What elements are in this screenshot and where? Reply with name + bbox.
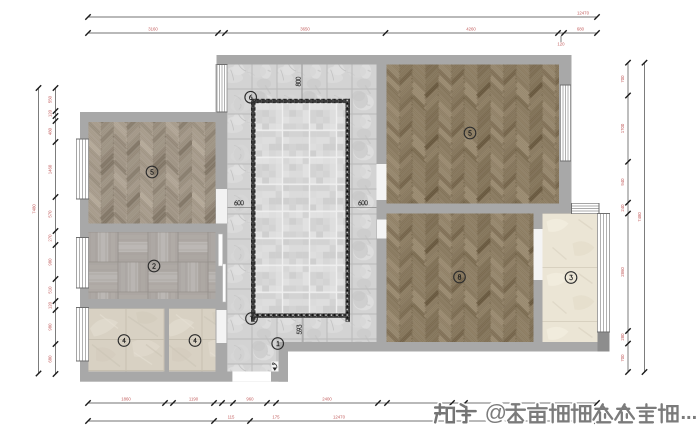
svg-text:570: 570 xyxy=(48,210,53,218)
svg-text:700: 700 xyxy=(620,354,625,362)
svg-text:1460: 1460 xyxy=(48,164,53,174)
svg-text:1860: 1860 xyxy=(121,397,131,402)
svg-text:700: 700 xyxy=(620,75,625,83)
svg-text:960: 960 xyxy=(246,397,254,402)
svg-text:280: 280 xyxy=(620,333,625,341)
svg-text:3160: 3160 xyxy=(148,27,158,32)
svg-text:...: ... xyxy=(681,402,698,424)
svg-text:175: 175 xyxy=(272,415,280,420)
svg-text:240: 240 xyxy=(620,204,625,212)
svg-text:120: 120 xyxy=(48,301,53,309)
svg-text:2400: 2400 xyxy=(322,397,332,402)
svg-text:680: 680 xyxy=(48,355,53,363)
svg-text:980: 980 xyxy=(48,323,53,331)
svg-text:4260: 4260 xyxy=(466,27,476,32)
svg-text:2860: 2860 xyxy=(620,267,625,277)
svg-text:1700: 1700 xyxy=(620,123,625,133)
svg-text:940: 940 xyxy=(620,178,625,186)
svg-text:270: 270 xyxy=(48,234,53,242)
svg-text:12470: 12470 xyxy=(577,11,590,16)
svg-text:480: 480 xyxy=(48,127,53,135)
svg-text:3650: 3650 xyxy=(300,27,310,32)
svg-text:510: 510 xyxy=(48,286,53,294)
svg-text:1190: 1190 xyxy=(189,397,199,402)
svg-text:120: 120 xyxy=(557,42,565,47)
svg-text:115: 115 xyxy=(228,415,235,420)
svg-text:550: 550 xyxy=(48,95,53,103)
svg-text:7480: 7480 xyxy=(637,212,642,222)
svg-text:680: 680 xyxy=(577,27,585,32)
svg-text:980: 980 xyxy=(48,258,53,266)
svg-text:7480: 7480 xyxy=(32,204,37,214)
svg-text:120: 120 xyxy=(48,109,53,117)
svg-text:12470: 12470 xyxy=(333,415,346,420)
svg-text:@: @ xyxy=(485,400,507,425)
